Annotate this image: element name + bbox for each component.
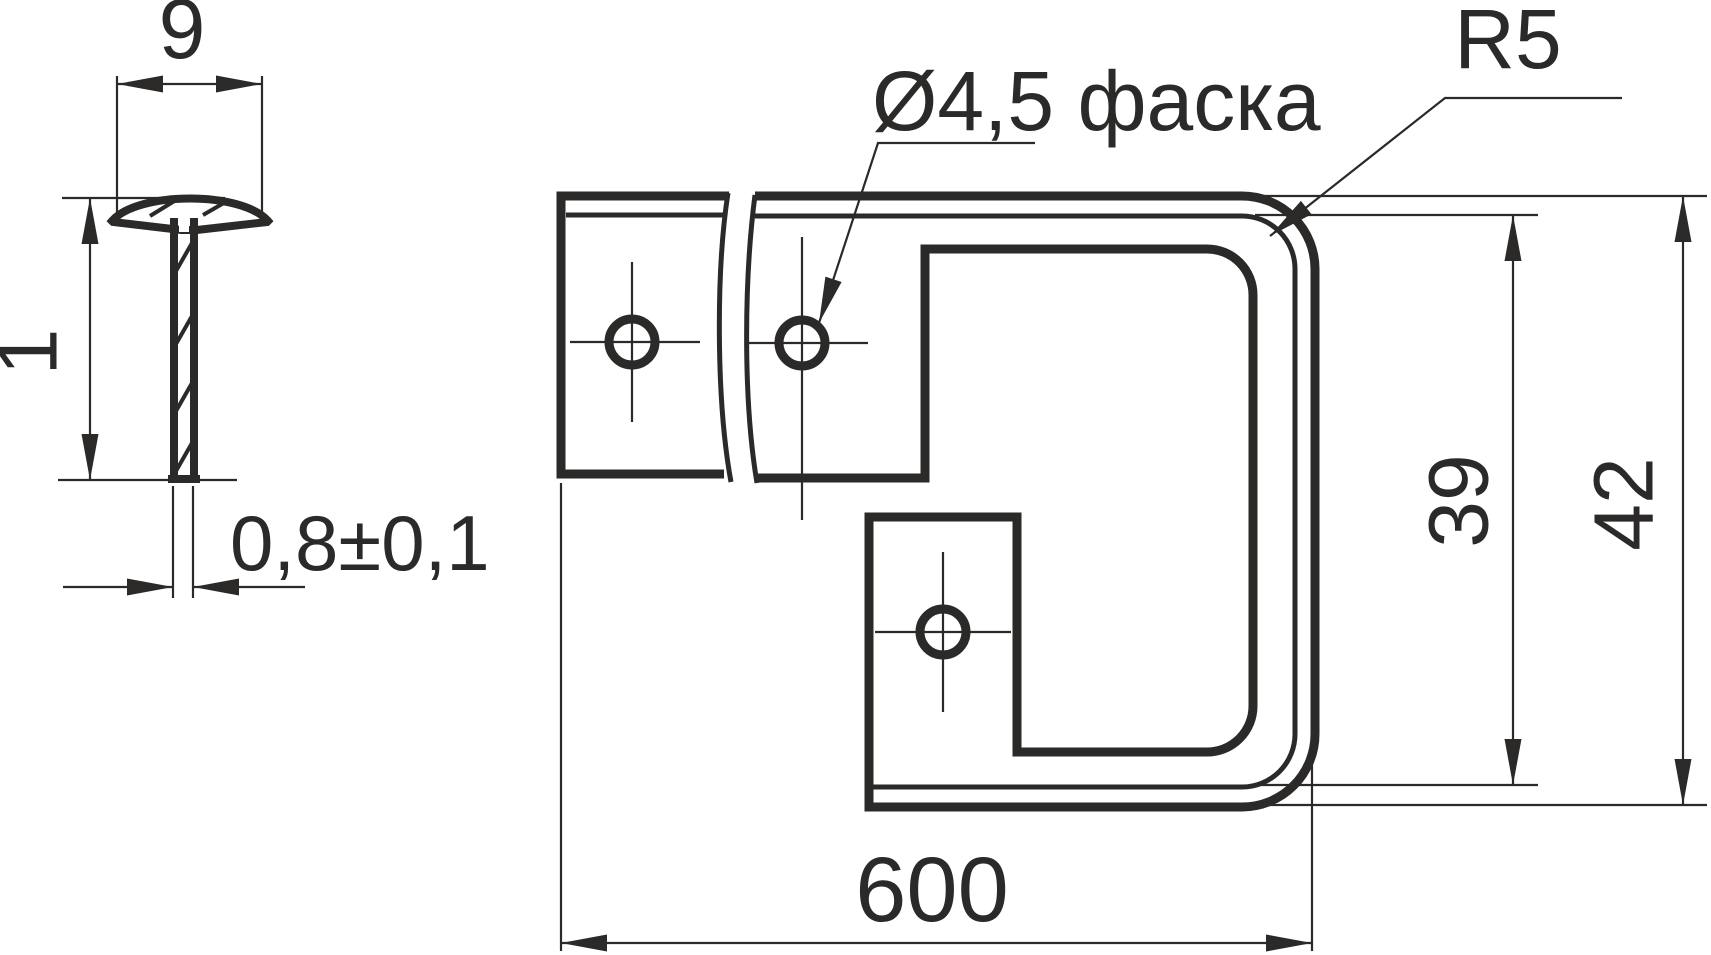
outer-height-label: 42	[1576, 457, 1670, 550]
stem-thickness-dimension: 0,8±0,1	[63, 486, 490, 598]
hatch-line	[176, 316, 192, 344]
arrowhead-right	[216, 76, 262, 93]
section-view: 9 1	[0, 0, 490, 598]
arrowhead-up	[82, 198, 99, 244]
mounting-holes	[609, 319, 966, 655]
drawing-canvas: 9 1	[0, 0, 1711, 955]
arrowhead-left	[117, 76, 163, 93]
arrowhead-left	[561, 935, 607, 952]
overall-length-label: 600	[855, 839, 1009, 941]
length-dimension: 600	[561, 483, 1312, 952]
cap-width-label: 9	[159, 0, 206, 76]
arrowhead-down	[1505, 739, 1522, 785]
inner-height-label: 39	[1411, 454, 1505, 547]
corner-radius-label: R5	[1454, 0, 1561, 86]
hatch-line	[176, 443, 192, 471]
lip-line	[755, 216, 1295, 787]
hole-callout-label: Ø4,5 фаска	[872, 54, 1321, 148]
hatch-line	[176, 383, 192, 411]
arrowhead-right	[1266, 935, 1312, 952]
profile-height-label: 1	[0, 329, 74, 376]
main-body-outline	[755, 196, 1315, 807]
break-line	[747, 195, 757, 483]
stem-opening	[179, 212, 189, 232]
arrowhead-down	[82, 434, 99, 480]
stem-thickness-label: 0,8±0,1	[230, 499, 490, 587]
cap-width-dimension: 9	[117, 0, 262, 213]
hatch-line	[176, 243, 192, 271]
break-line	[719, 193, 731, 482]
arrowhead-up	[1505, 215, 1522, 261]
stem-hatching	[176, 243, 192, 471]
arrowhead-right	[127, 579, 173, 596]
left-tab-outline	[561, 196, 729, 474]
corner-radius-callout: R5	[1270, 0, 1622, 236]
main-view: 600 39 42	[561, 0, 1707, 952]
profile-cross-section	[112, 199, 268, 481]
arrowhead-down	[1675, 759, 1692, 805]
hole-diameter-callout: Ø4,5 фаска	[819, 54, 1321, 323]
leader-arrowhead	[819, 277, 842, 323]
part-outline	[561, 193, 1315, 807]
technical-drawing-page: 9 1	[0, 0, 1711, 955]
arrowhead-up	[1675, 196, 1692, 242]
profile-height-dimension: 1	[0, 198, 237, 480]
